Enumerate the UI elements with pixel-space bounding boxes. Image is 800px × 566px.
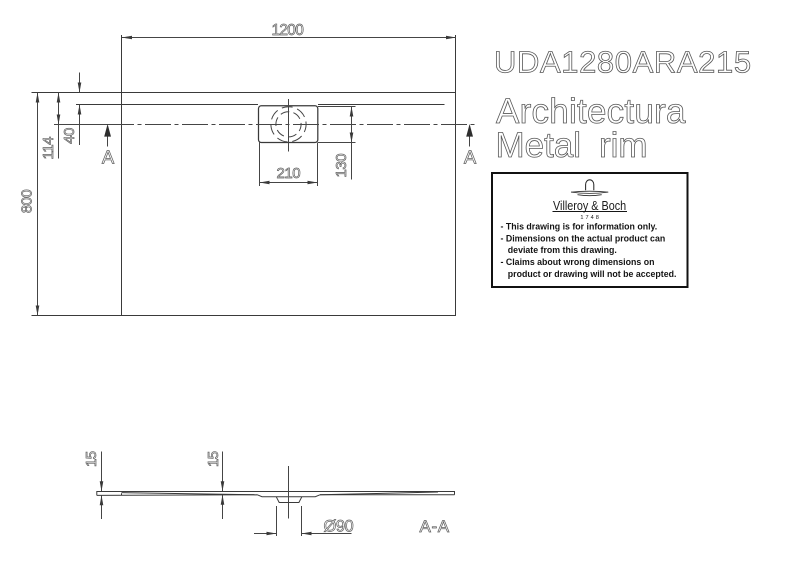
svg-text:A-A: A-A bbox=[420, 517, 450, 536]
svg-text:1748: 1748 bbox=[580, 215, 600, 221]
svg-text:130: 130 bbox=[333, 154, 350, 178]
svg-text:deviate from this drawing.: deviate from this drawing. bbox=[508, 245, 617, 255]
svg-text:rim: rim bbox=[599, 126, 648, 165]
svg-text:1200: 1200 bbox=[271, 22, 304, 39]
svg-text:A: A bbox=[464, 146, 477, 167]
svg-text:A: A bbox=[102, 146, 115, 167]
svg-text:210: 210 bbox=[277, 165, 301, 182]
svg-text:114: 114 bbox=[40, 137, 57, 160]
svg-text:15: 15 bbox=[83, 451, 100, 467]
svg-text:UDA1280ARA215: UDA1280ARA215 bbox=[494, 45, 752, 80]
svg-text:15: 15 bbox=[205, 451, 222, 467]
svg-text:- Claims about wrong dimension: - Claims about wrong dimensions on bbox=[501, 257, 655, 267]
svg-text:Ø90: Ø90 bbox=[324, 518, 354, 536]
svg-text:product or drawing will not be: product or drawing will not be accepted. bbox=[508, 269, 677, 279]
svg-text:- Dimensions on the actual pro: - Dimensions on the actual product can bbox=[501, 233, 666, 243]
svg-text:- This drawing is for informat: - This drawing is for information only. bbox=[501, 222, 658, 232]
svg-text:40: 40 bbox=[61, 128, 78, 144]
svg-text:800: 800 bbox=[19, 190, 36, 214]
svg-text:Metal: Metal bbox=[496, 126, 582, 165]
